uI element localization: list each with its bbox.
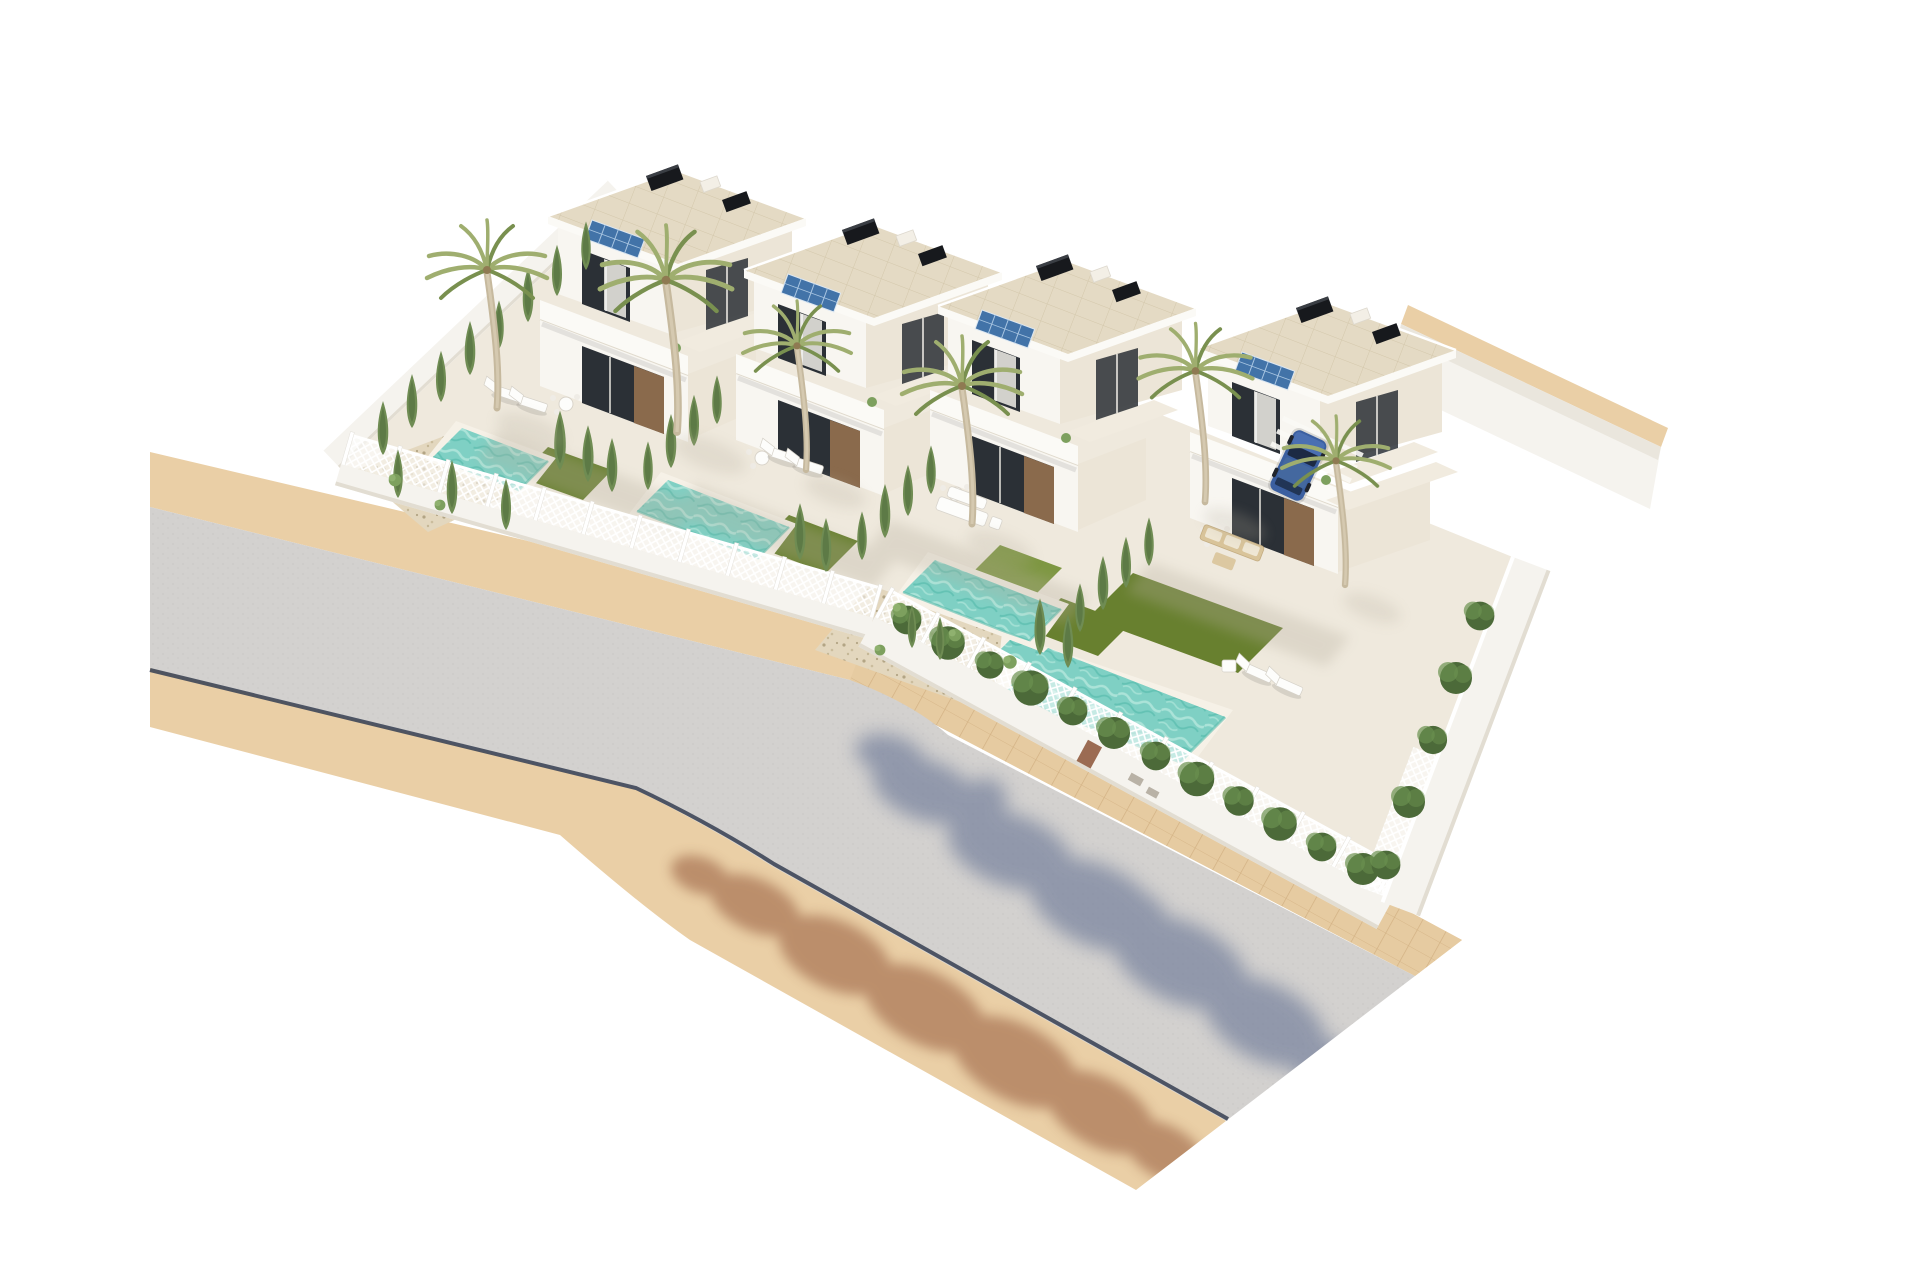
pool-side-table: [1222, 660, 1236, 672]
render-canvas: [0, 0, 1920, 1280]
render-stage: [0, 0, 1920, 1280]
